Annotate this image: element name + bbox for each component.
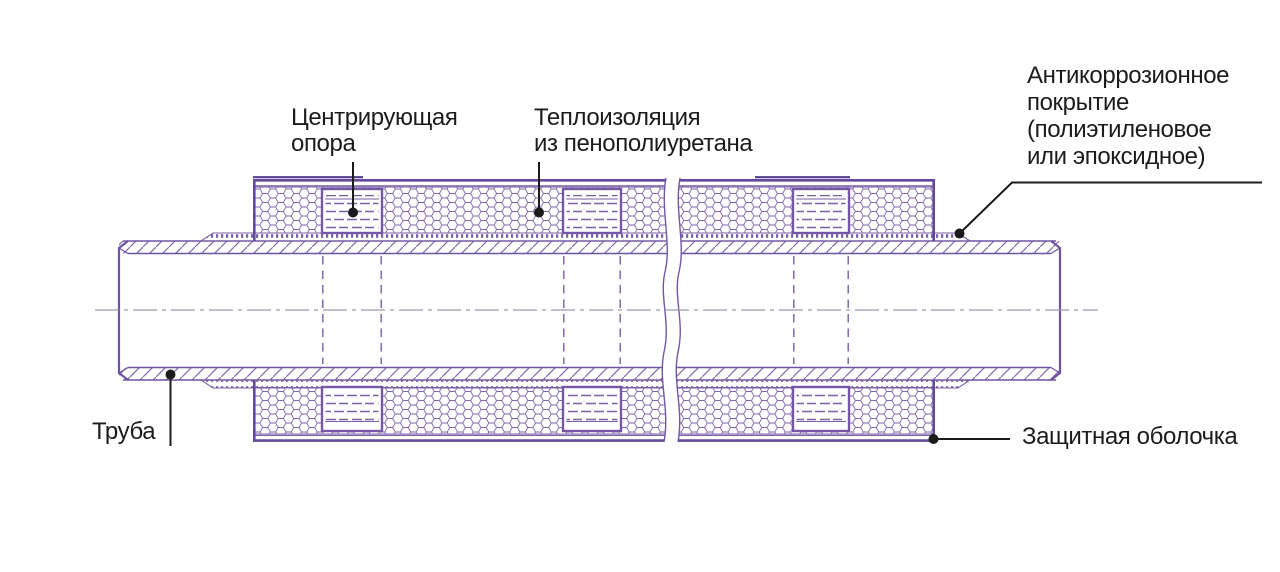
label-line: Центрирующая — [291, 105, 457, 131]
label-line: Антикоррозионное — [1027, 62, 1229, 89]
leader-dot-insulation — [534, 208, 544, 218]
label-line: покрытие — [1027, 89, 1229, 116]
leader-anticorrosion — [960, 183, 1263, 234]
centering-support-block — [793, 189, 849, 233]
label-centering-support: Центрирующая опора — [291, 105, 457, 157]
leader-dot-centering-support — [348, 208, 358, 218]
pipe-wall-hatch-top — [119, 241, 1060, 254]
centering-support-block — [322, 387, 382, 431]
label-line: из пенополиуретана — [534, 131, 752, 157]
label-pipe: Труба — [92, 419, 155, 445]
label-line: Теплоизоляция — [534, 105, 752, 131]
centering-support-block — [563, 387, 621, 431]
pipe-wall-hatch-bottom — [119, 368, 1060, 381]
label-casing: Защитная оболочка — [1022, 424, 1237, 450]
label-line: Труба — [92, 419, 155, 445]
label-line: или эпоксидное) — [1027, 143, 1229, 170]
centering-support-block — [793, 387, 849, 431]
label-anticorrosion: Антикоррозионное покрытие (полиэтиленово… — [1027, 62, 1229, 170]
label-insulation: Теплоизоляция из пенополиуретана — [534, 105, 752, 157]
leader-dot-casing — [929, 434, 939, 444]
leader-dot-anticorrosion — [955, 229, 965, 239]
label-line: (полиэтиленовое — [1027, 116, 1229, 143]
label-line: опора — [291, 131, 457, 157]
centering-support-block — [563, 189, 621, 233]
leader-dot-pipe — [166, 370, 176, 380]
label-line: Защитная оболочка — [1022, 424, 1237, 450]
pipe-diagram: Центрирующая опора Теплоизоляция из пено… — [0, 0, 1280, 572]
